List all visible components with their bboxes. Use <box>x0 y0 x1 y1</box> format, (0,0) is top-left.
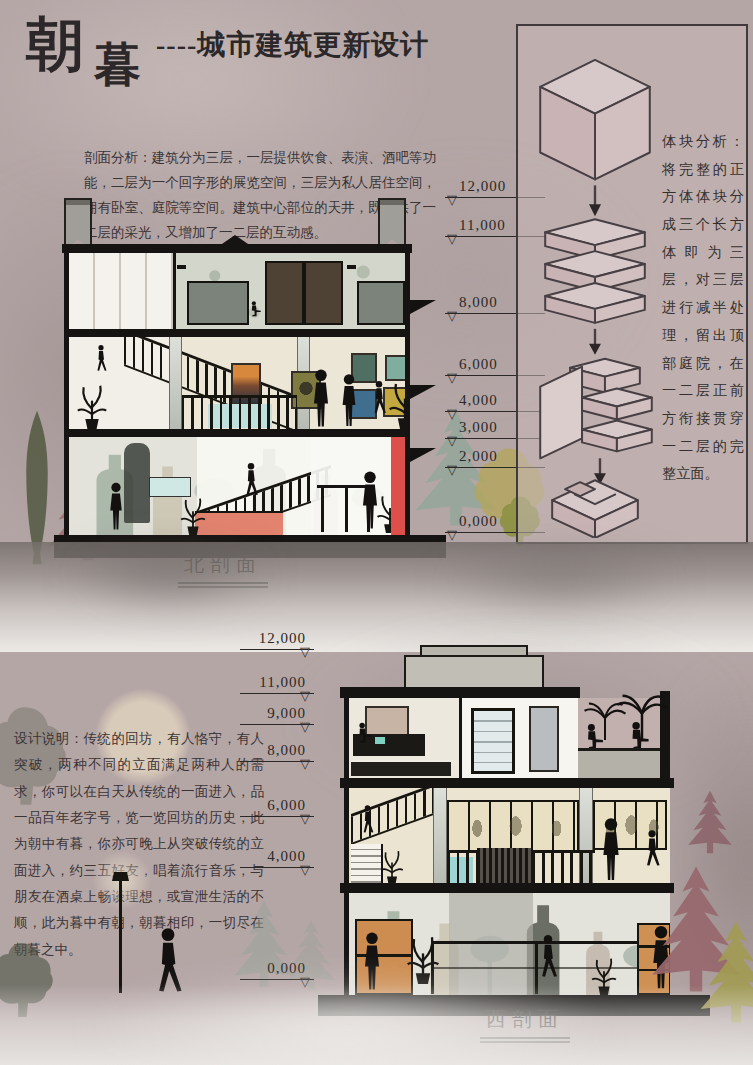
level-triangle-icon: ▽ <box>447 407 457 420</box>
bed-silhouette <box>351 760 451 776</box>
walking-person-silhouette <box>148 928 188 992</box>
gray-block <box>449 893 533 995</box>
monitor-screen <box>375 737 385 744</box>
wall-lamp-icon <box>177 265 186 269</box>
bed-left <box>187 281 249 325</box>
wardrobe <box>69 253 176 329</box>
person-silhouette <box>310 369 332 427</box>
poster-title-sub: 暮 <box>94 34 141 97</box>
level-triangle-icon: ▽ <box>447 232 457 245</box>
floor1-bar-west <box>344 893 670 995</box>
watercolor-band <box>0 542 753 652</box>
pilaster <box>433 788 447 883</box>
floor-slab <box>69 329 405 337</box>
study-room <box>349 698 462 778</box>
awning <box>410 448 436 462</box>
table-leg <box>345 488 348 532</box>
street-lamp-post <box>119 881 122 993</box>
north-section-drawing <box>64 198 410 558</box>
person-silhouette <box>641 818 663 878</box>
bed-right <box>357 281 405 325</box>
poster-tagline: ----城市建筑更新设计 <box>156 26 429 64</box>
level-triangle-icon: ▽ <box>300 812 310 825</box>
large-bottle <box>124 443 150 523</box>
person-silhouette <box>359 802 376 836</box>
floor2-gallery <box>69 337 405 429</box>
floor1-bar <box>69 437 405 535</box>
pilaster <box>169 337 182 429</box>
elevation-marker: 4,000▽ <box>240 849 314 868</box>
roof-terrace <box>578 698 660 778</box>
stage-platform <box>195 511 283 535</box>
elevation-marker: 11,000▽ <box>240 675 314 694</box>
plant <box>589 953 619 995</box>
table-leg <box>321 488 324 532</box>
roof-bar <box>62 244 412 253</box>
plant <box>75 379 109 429</box>
level-triangle-icon: ▽ <box>300 975 310 988</box>
massing-panel: 体块分析：将完整的正方体体块分成三个长方体即为三层，对三层进行减半处理，留出顶部… <box>516 24 748 544</box>
plant <box>405 929 441 985</box>
building-body <box>64 253 410 535</box>
glass-door <box>471 708 515 774</box>
poster-root: 朝 暮 ----城市建筑更新设计 剖面分析：建筑分为三层，一层提供饮食、表演、酒… <box>0 0 753 1065</box>
street-lamp-head <box>112 872 129 881</box>
pine-tree-faint <box>282 905 340 1005</box>
level-triangle-icon: ▽ <box>300 645 310 658</box>
railing-balusters <box>182 398 297 429</box>
floor-slab <box>340 883 674 893</box>
level-triangle-icon: ▽ <box>447 371 457 384</box>
person-silhouette <box>584 724 606 750</box>
massing-analysis-text: 体块分析：将完整的正方体体块分成三个长方体即为三层，对三层进行减半处理，留出顶部… <box>662 128 744 488</box>
person-silhouette <box>628 722 652 750</box>
elevation-marker: 6,000▽ <box>240 798 314 817</box>
person-silhouette <box>361 929 383 993</box>
floor3-bedroom <box>69 253 405 329</box>
floor-slab <box>340 778 674 788</box>
gray-door <box>529 706 559 772</box>
person-silhouette <box>357 722 373 744</box>
elevation-marker: 9,000▽ <box>240 706 314 725</box>
massing-diagram <box>520 30 670 538</box>
plant <box>377 846 407 883</box>
poster-title-main: 朝 <box>26 6 84 84</box>
level-triangle-icon: ▽ <box>447 193 457 206</box>
stair-void-silhouette <box>477 848 533 883</box>
center-cabinet <box>265 261 343 325</box>
chimney-left <box>64 198 92 250</box>
awning <box>410 385 436 399</box>
chimney-right <box>378 198 406 250</box>
level-triangle-icon: ▽ <box>447 463 457 476</box>
level-triangle-icon: ▽ <box>300 689 310 702</box>
floor-slab <box>69 429 405 437</box>
design-notes-text: 设计说明：传统的回坊，有人恪守，有人突破，两种不同的立面满足两种人的需求，你可以… <box>14 726 264 963</box>
terrace-parapet <box>578 748 660 778</box>
level-triangle-icon: ▽ <box>447 528 457 541</box>
level-triangle-icon: ▽ <box>300 720 310 733</box>
awning <box>410 300 436 314</box>
person-silhouette <box>241 459 261 499</box>
elevation-marker: 0,000▽ <box>240 961 314 980</box>
west-section-drawing <box>344 645 674 1017</box>
person-silhouette <box>107 481 125 531</box>
elevation-marker: 8,000▽ <box>240 743 314 762</box>
west-section-label: 西剖面 <box>480 1006 570 1039</box>
floor3-rooms <box>344 698 578 778</box>
person-silhouette <box>93 343 109 373</box>
void-railing <box>182 395 297 429</box>
person-silhouette <box>599 818 623 880</box>
person-silhouette <box>339 373 359 427</box>
floor2-gallery-west <box>344 788 670 883</box>
level-triangle-icon: ▽ <box>447 434 457 447</box>
level-triangle-icon: ▽ <box>447 309 457 322</box>
roof-bar <box>340 687 580 698</box>
elevation-marker: 12,000▽ <box>240 631 314 650</box>
level-triangle-icon: ▽ <box>300 757 310 770</box>
wall-lamp-icon <box>347 265 356 269</box>
person-silhouette <box>649 919 670 995</box>
parapet-main <box>404 655 544 689</box>
pine-tree-olive <box>694 872 753 1065</box>
plant <box>387 375 405 429</box>
counter-leg <box>431 944 434 994</box>
person-silhouette <box>369 371 389 423</box>
person-silhouette <box>250 293 262 325</box>
person-silhouette <box>535 917 561 995</box>
plant <box>179 493 207 535</box>
screen-paintings <box>447 800 579 852</box>
pine-tree-red-small <box>684 776 736 868</box>
level-triangle-icon: ▽ <box>300 863 310 876</box>
red-accent-strip <box>391 437 405 535</box>
